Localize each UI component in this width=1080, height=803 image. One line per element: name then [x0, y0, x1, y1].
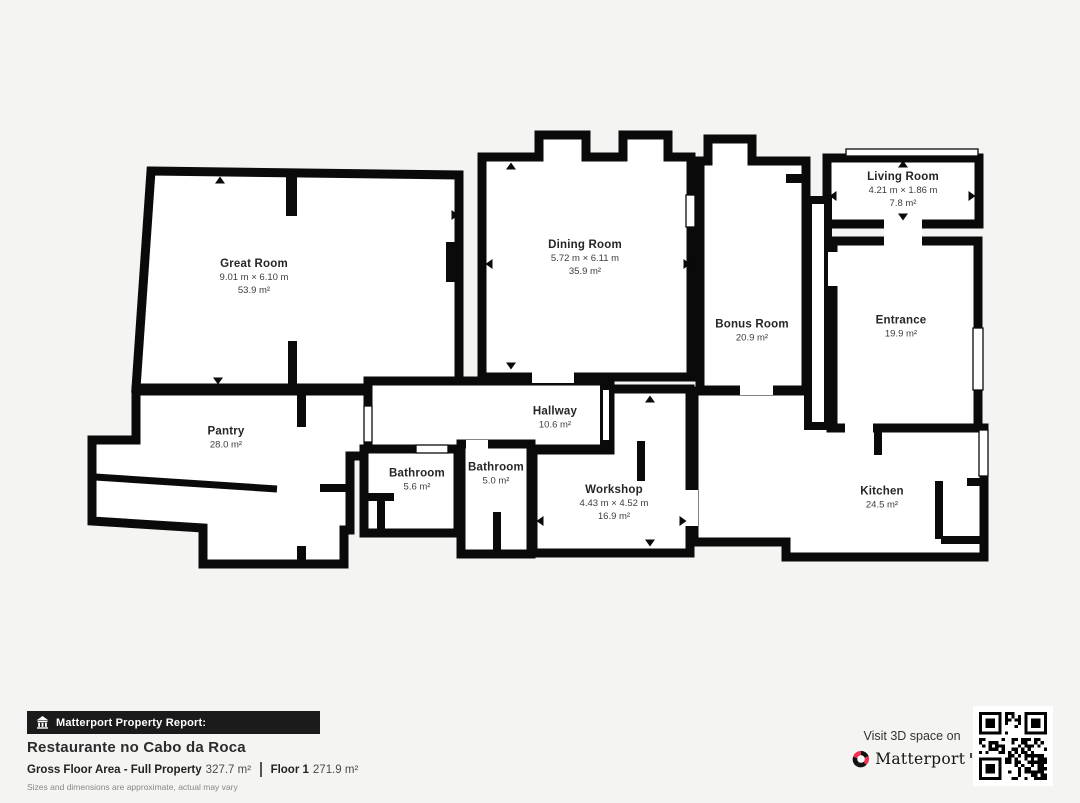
wall-segment: [320, 484, 350, 492]
matterport-wordmark: Matterport: [875, 750, 965, 768]
wall-segment: [377, 498, 385, 534]
room-shape-great-room: [136, 171, 459, 388]
corridor-strip: [812, 204, 824, 422]
gross-floor-area-value: 327.7 m²: [206, 764, 251, 776]
building-icon: [36, 716, 49, 729]
window: [846, 149, 978, 156]
gross-floor-area-label: Gross Floor Area - Full Property: [27, 764, 202, 776]
wall-segment: [637, 441, 645, 481]
report-header-bar: Matterport Property Report:: [27, 711, 320, 734]
wall-segment: [967, 478, 984, 486]
visit-3d-block: Visit 3D space on Matterport: [848, 729, 976, 768]
wall-segment: [286, 171, 297, 216]
room-shape-dining-room: [482, 135, 691, 377]
floor-area-value: 271.9 m²: [313, 764, 358, 776]
wall-segment: [288, 341, 297, 391]
wall-segment: [297, 546, 306, 564]
door-gap: [884, 219, 922, 247]
window: [979, 430, 988, 476]
qr-pattern: [979, 712, 1047, 780]
door-gap: [466, 440, 488, 449]
wall-segment: [941, 536, 981, 544]
property-name: Restaurante no Cabo da Roca: [27, 739, 246, 756]
floor-label: Floor 1: [271, 764, 309, 776]
wall-segment: [786, 174, 810, 183]
matterport-floorplan-report: { "rooms": [ {"id":"great-room","name":"…: [0, 0, 1080, 803]
wall-segment: [874, 428, 882, 455]
wall-segment: [935, 481, 943, 539]
stats-divider: [260, 762, 262, 777]
wall-segment: [297, 391, 306, 427]
window: [364, 406, 372, 442]
door-gap: [684, 490, 698, 526]
qr-code: [973, 706, 1053, 786]
report-bar-label: Matterport Property Report:: [56, 717, 206, 729]
door-gap: [845, 423, 873, 434]
matterport-pinwheel-icon: [852, 750, 870, 768]
door-gap: [532, 371, 574, 383]
room-shape-entrance: [833, 241, 978, 428]
door-gap: [740, 382, 773, 395]
room-shape-hallway: [368, 381, 610, 449]
visit-3d-text: Visit 3D space on: [848, 729, 976, 743]
floor-plan: [0, 0, 1080, 660]
trademark-tick: [970, 753, 972, 758]
matterport-logo: Matterport: [848, 750, 976, 768]
window: [416, 445, 448, 453]
disclaimer-text: Sizes and dimensions are approximate, ac…: [27, 782, 238, 792]
wall-segment: [446, 242, 463, 282]
window: [686, 195, 695, 227]
door-gap: [828, 252, 839, 286]
floor-area-stats: Gross Floor Area - Full Property 327.7 m…: [27, 762, 358, 777]
corridor-strip: [603, 390, 609, 440]
window: [973, 328, 983, 390]
wall-segment: [493, 512, 501, 554]
